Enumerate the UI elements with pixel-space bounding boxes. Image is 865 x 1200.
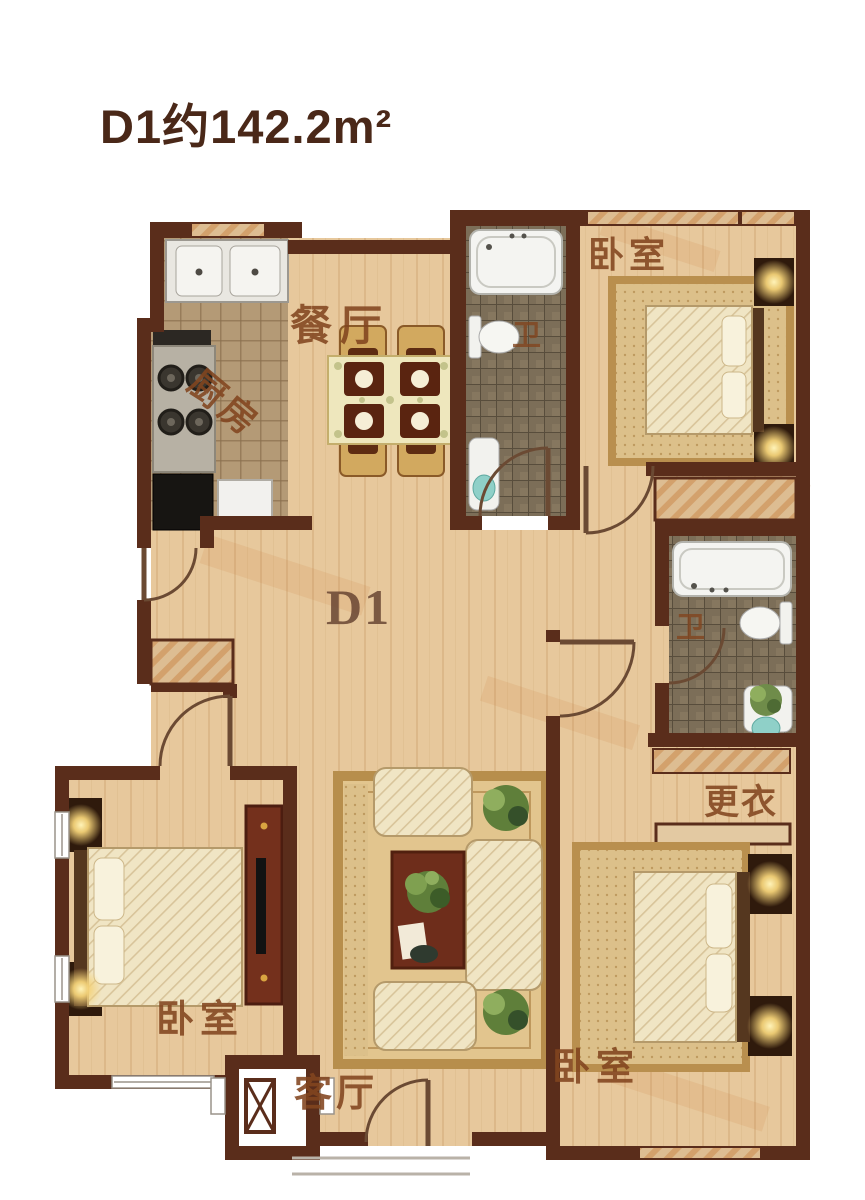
plan-title: D1约142.2m² xyxy=(100,88,392,157)
lamp-glow xyxy=(747,1003,793,1049)
floor-plan-drawing xyxy=(0,0,865,1200)
label-dressing-room: 更衣 xyxy=(704,774,778,825)
corner-plant xyxy=(483,785,529,831)
dishwasher xyxy=(218,480,272,522)
closet xyxy=(655,478,796,520)
bay-window xyxy=(151,640,233,684)
sofa xyxy=(374,768,472,836)
living-room-furniture xyxy=(338,768,546,1064)
closet-band xyxy=(653,749,790,773)
label-dining-room: 餐厅 xyxy=(290,292,390,353)
sofa xyxy=(374,982,476,1050)
label-unit-marker: D1 xyxy=(326,578,391,636)
label-bathroom-top: 卫 xyxy=(512,312,541,354)
lamp-glow xyxy=(747,861,793,907)
corner-plant xyxy=(483,989,529,1035)
toilet xyxy=(780,602,792,644)
label-bedroom-top-right: 卧室 xyxy=(588,226,670,278)
label-bedroom-bottom-left: 卧室 xyxy=(156,988,244,1043)
label-bathroom-middle: 卫 xyxy=(676,604,705,646)
kitchen-shelf xyxy=(153,330,211,346)
floor-plan-page: D1约142.2m² 餐厅 厨房 卧室 卫 卫 更衣 卧室 卧室 客厅 D1 xyxy=(0,0,865,1200)
headboard xyxy=(736,872,750,1042)
entry-step xyxy=(292,1158,470,1174)
tv xyxy=(256,858,266,954)
bathtub xyxy=(673,542,791,596)
lamp-glow xyxy=(752,260,796,304)
label-bedroom-bottom-right: 卧室 xyxy=(552,1036,640,1091)
rug-runner xyxy=(344,784,368,1056)
label-living-room: 客厅 xyxy=(294,1062,378,1117)
wardrobe-bar xyxy=(656,824,790,844)
sofa xyxy=(466,840,542,990)
bedroom1-furniture xyxy=(612,258,796,472)
